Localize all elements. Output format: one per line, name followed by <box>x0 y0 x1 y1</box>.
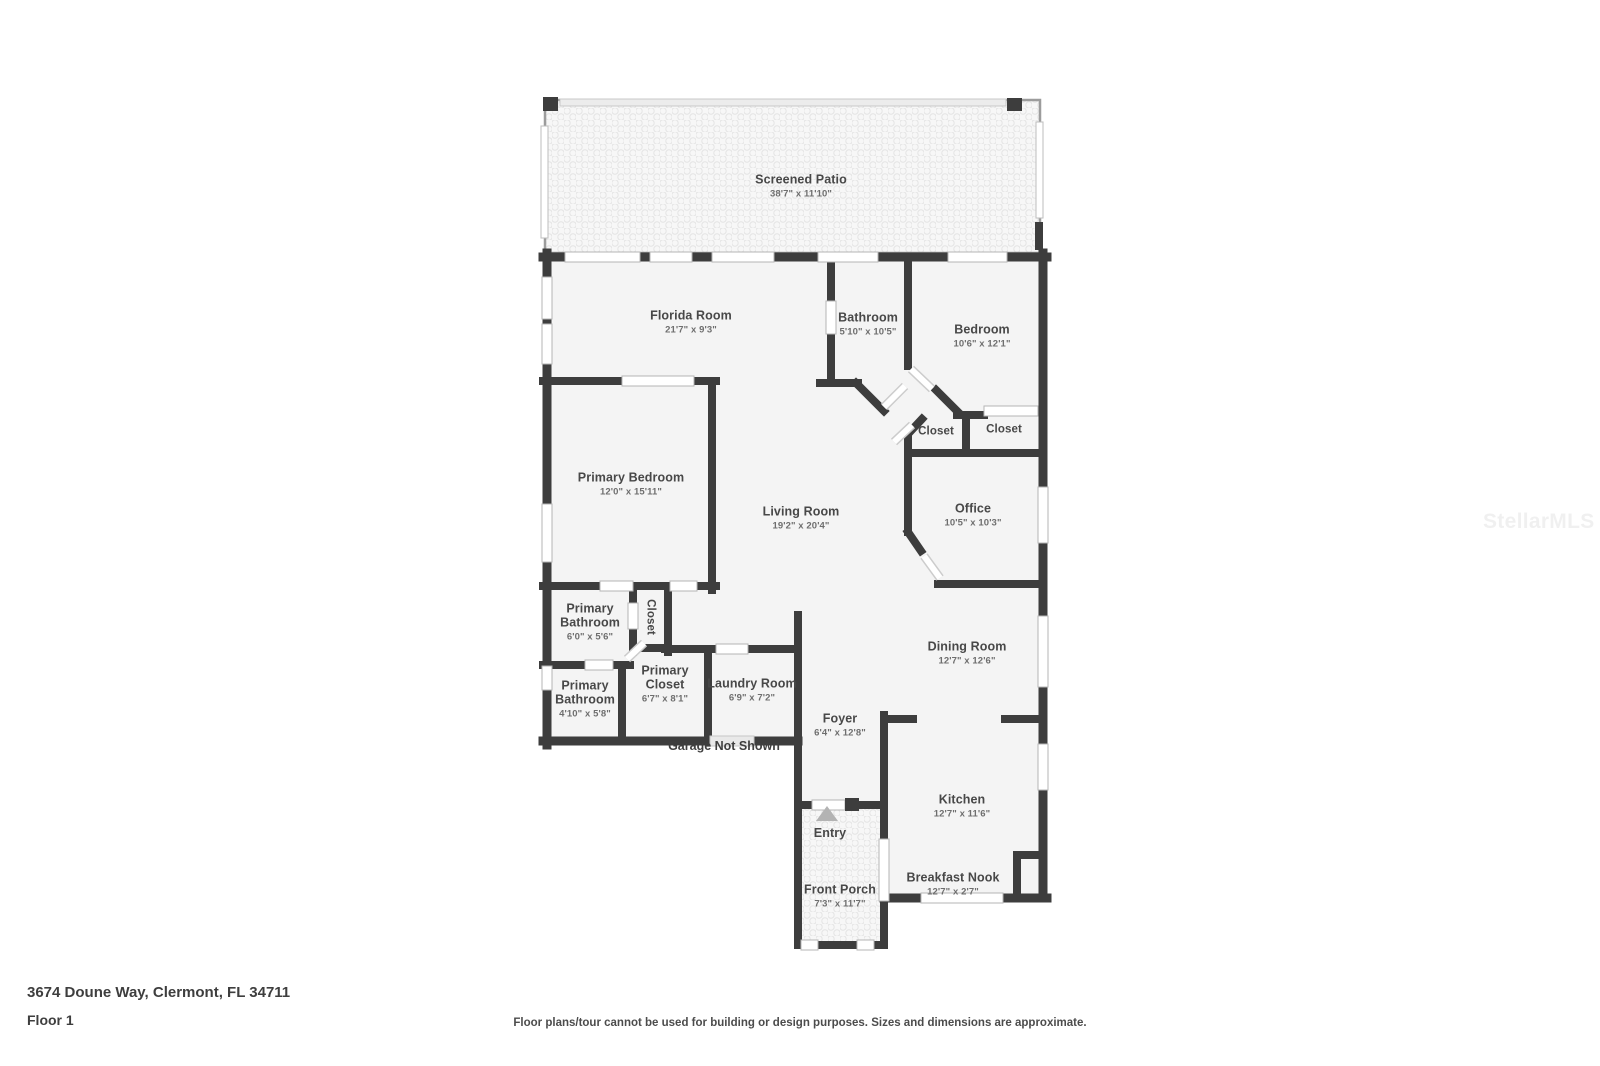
screened-patio-area <box>541 97 1043 253</box>
entry-arrow-icon <box>816 806 838 821</box>
stellar-mls-watermark: StellarMLS <box>1483 510 1595 534</box>
floor-plan-page: Screened Patio 38'7" x 11'10" Florida Ro… <box>0 0 1600 1066</box>
address-text: 3674 Doune Way, Clermont, FL 34711 <box>27 984 290 1001</box>
floor-plan-drawing <box>0 0 1600 1066</box>
garage-wall-segment <box>710 736 754 746</box>
entry-wall-block <box>845 798 859 811</box>
front-porch-area <box>798 805 884 945</box>
disclaimer-text: Floor plans/tour cannot be used for buil… <box>0 1017 1600 1029</box>
